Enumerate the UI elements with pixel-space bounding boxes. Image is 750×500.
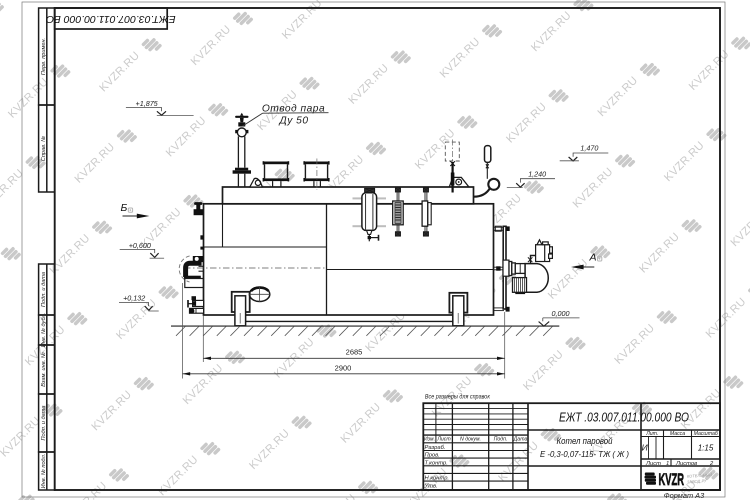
svg-text:Перв. примен.: Перв. примен.: [41, 38, 47, 75]
svg-text:Инв. № подл.: Инв. № подл.: [41, 454, 47, 489]
svg-text:Инв. № дубл.: Инв. № дубл.: [41, 313, 47, 347]
svg-text:Лист: Лист: [645, 461, 661, 467]
svg-text:Подп. и дата: Подп. и дата: [41, 405, 47, 440]
svg-text:Б: Б: [121, 202, 128, 214]
svg-text:ЕЖТ .03.007.011.00.000 ВО: ЕЖТ .03.007.011.00.000 ВО: [559, 411, 689, 425]
svg-text:2685: 2685: [346, 347, 363, 356]
svg-text:Т.контр.: Т.контр.: [425, 460, 448, 466]
svg-text:KVZR: KVZR: [659, 470, 685, 489]
svg-text:+0,132: +0,132: [123, 294, 145, 303]
svg-text:Лист: Лист: [436, 437, 451, 443]
svg-text:Ду 50: Ду 50: [278, 115, 308, 126]
svg-text:Лит.: Лит.: [645, 431, 658, 437]
svg-text:1: 1: [666, 461, 669, 467]
svg-text:Котел паровой: Котел паровой: [557, 436, 613, 446]
svg-text:N докум.: N докум.: [460, 437, 481, 443]
svg-text:Разраб.: Разраб.: [425, 445, 446, 451]
svg-text:+0,600: +0,600: [129, 241, 151, 250]
svg-text:Утв.: Утв.: [424, 483, 438, 489]
svg-text:Дата: Дата: [513, 437, 528, 443]
svg-text:1,240: 1,240: [528, 170, 546, 179]
svg-text:Пров.: Пров.: [425, 453, 440, 459]
svg-text:ЕЖТ.03.007.011.00.000 ВО: ЕЖТ.03.007.011.00.000 ВО: [46, 13, 176, 25]
svg-text:+1,875: +1,875: [136, 99, 159, 108]
svg-text:2900: 2900: [335, 364, 352, 373]
svg-text:Формат А3: Формат А3: [664, 491, 705, 500]
svg-text:Изм.: Изм.: [424, 437, 435, 443]
svg-text:1:15: 1:15: [698, 444, 714, 453]
svg-text:Масштаб: Масштаб: [694, 431, 719, 437]
svg-text:Взам. инв. №: Взам. инв. №: [41, 352, 47, 387]
svg-text:1,470: 1,470: [580, 144, 598, 153]
svg-text:Справ. №: Справ. №: [41, 136, 47, 161]
svg-text:Масса: Масса: [670, 431, 685, 437]
svg-text:0,000: 0,000: [552, 309, 570, 318]
svg-text:Все размеры для справок: Все размеры для справок: [425, 393, 491, 401]
svg-text:Н.контр.: Н.контр.: [425, 476, 450, 482]
svg-text:Е -0,3-0,07-115- ТЖ ( Ж ): Е -0,3-0,07-115- ТЖ ( Ж ): [540, 449, 629, 459]
svg-text:И: И: [642, 443, 649, 453]
svg-text:Листов: Листов: [675, 461, 697, 467]
svg-text:Подп.: Подп.: [494, 437, 508, 443]
svg-text:А: А: [589, 251, 597, 263]
svg-text:Подп. и дата: Подп. и дата: [41, 272, 47, 307]
